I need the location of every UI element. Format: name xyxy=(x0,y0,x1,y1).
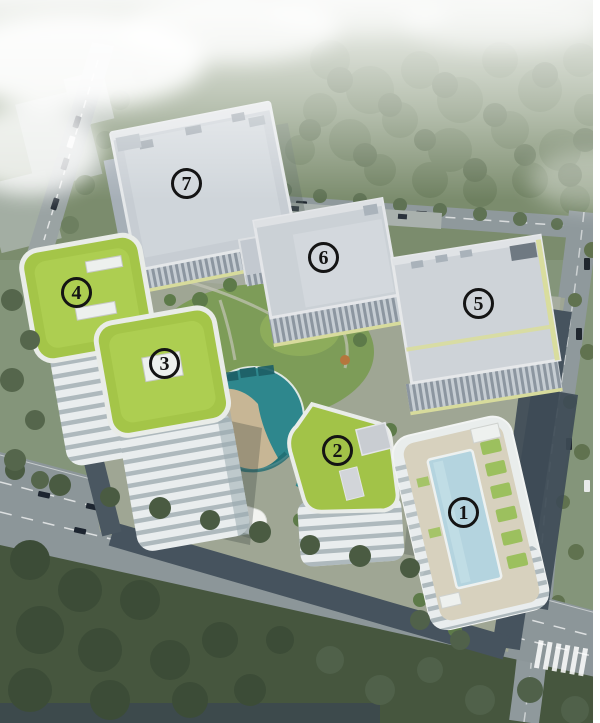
site-plan-scene xyxy=(0,0,600,723)
building-1-label: 1 xyxy=(448,497,479,528)
building-4-label: 4 xyxy=(61,277,92,308)
aerial-site-rendering: 1 2 3 4 5 6 7 xyxy=(0,0,600,723)
fog-overlay xyxy=(0,0,600,210)
building-2-label: 2 xyxy=(322,435,353,466)
building-3-label: 3 xyxy=(149,348,180,379)
building-7-label: 7 xyxy=(171,168,202,199)
building-5-label: 5 xyxy=(463,288,494,319)
building-6-label: 6 xyxy=(308,242,339,273)
page-margin xyxy=(593,0,600,723)
building-5 xyxy=(386,235,565,415)
